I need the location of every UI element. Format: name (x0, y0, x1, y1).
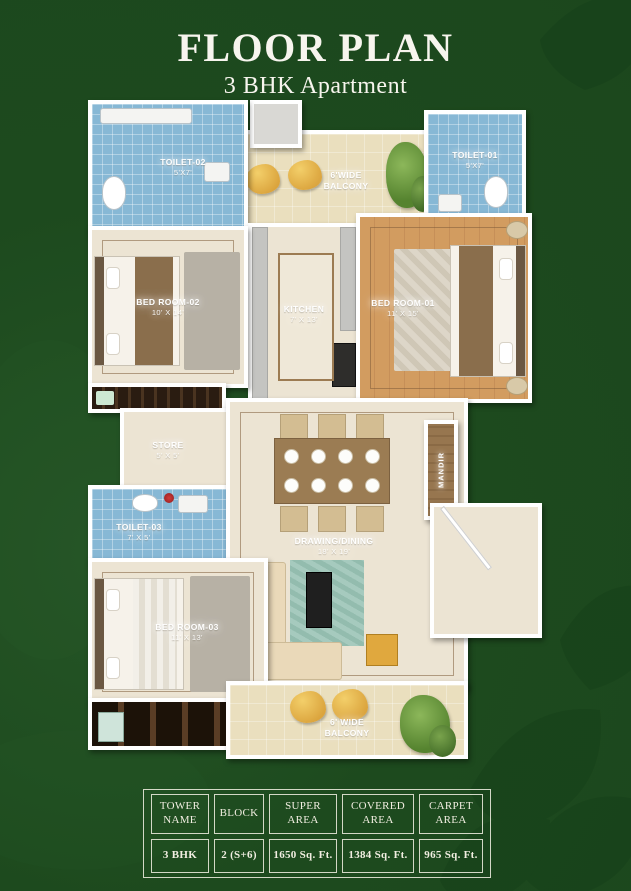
toilet-fixture (132, 494, 158, 512)
spec-value-carpet-area: 965 Sq. Ft. (419, 839, 483, 873)
plant-decor (386, 142, 428, 208)
pillow (106, 267, 120, 289)
floor-plan: 6'WIDE BALCONY TOILET-01 5'X7' TOILET-02… (85, 95, 545, 763)
header: FLOOR PLAN 3 BHK Apartment (0, 24, 631, 100)
sink-fixture (204, 162, 230, 182)
sink-fixture (438, 194, 462, 212)
room-toilet-03: TOILET-03 7' X 5' (88, 485, 248, 565)
spec-header-block: BLOCK (214, 794, 264, 834)
pillow (499, 258, 513, 280)
dining-chair (280, 414, 308, 440)
spec-header-tower-name: TOWER NAME (151, 794, 209, 834)
headboard (95, 579, 104, 689)
bed (94, 578, 184, 690)
kitchen-runner-rug (278, 253, 334, 381)
bed (94, 256, 180, 366)
poster-background: FLOOR PLAN 3 BHK Apartment 6'WIDE BALCON… (0, 0, 631, 891)
room-kitchen: KITCHEN 7' X 13' (248, 223, 360, 405)
spec-value-super-area: 1650 Sq. Ft. (269, 839, 337, 873)
entrance-foyer (430, 503, 542, 638)
dining-chair (280, 506, 308, 532)
dining-chair (318, 506, 346, 532)
tv-unit (306, 572, 332, 628)
room-balcony-bottom: 6' WIDE BALCONY (226, 681, 468, 759)
specification-table: TOWER NAME BLOCK SUPER AREA COVERED AREA… (143, 789, 491, 878)
sink-fixture (178, 495, 208, 513)
service-shaft (250, 100, 302, 148)
pillow (106, 589, 120, 611)
plate (284, 449, 299, 464)
pillow (499, 342, 513, 364)
dining-chair (318, 414, 346, 440)
kitchen-counter (252, 227, 268, 399)
bed (450, 245, 526, 377)
side-table (366, 634, 398, 666)
headboard (516, 246, 525, 376)
plate (311, 478, 326, 493)
plate (311, 449, 326, 464)
toilet-fixture (484, 176, 508, 208)
dining-table (274, 438, 390, 504)
room-toilet-02: TOILET-02 5'X7' (88, 100, 248, 235)
plate (284, 478, 299, 493)
spec-value-block: 2 (S+6) (214, 839, 264, 873)
page-title: FLOOR PLAN (0, 24, 631, 71)
bean-bag (246, 164, 280, 194)
bean-bag (332, 689, 368, 721)
entrance-door-leaf (440, 506, 492, 571)
kitchen-counter (340, 227, 356, 331)
dining-chair (356, 506, 384, 532)
plate (338, 478, 353, 493)
room-bed-room-01: BED ROOM-01 11' X 15' (356, 213, 532, 403)
spec-value-covered-area: 1384 Sq. Ft. (342, 839, 414, 873)
blanket (135, 257, 173, 365)
flower-decor (164, 493, 174, 503)
bathtub-fixture (100, 108, 192, 124)
headboard (95, 257, 104, 365)
bean-bag (290, 691, 326, 723)
plate (365, 449, 380, 464)
room-bed-room-02: BED ROOM-02 10' X 14' (88, 226, 248, 388)
area-rug (184, 252, 240, 370)
pillow (106, 333, 120, 355)
plant-decor (400, 695, 450, 753)
bedside-table (506, 221, 528, 239)
bedside-table (506, 377, 528, 395)
stove (332, 343, 356, 387)
area-rug (190, 576, 250, 692)
spec-header-covered-area: COVERED AREA (342, 794, 414, 834)
mirror (98, 712, 124, 742)
bean-bag (288, 160, 322, 190)
plate (365, 478, 380, 493)
toilet-fixture (102, 176, 126, 210)
blanket (133, 579, 177, 689)
blanket (459, 246, 493, 376)
dining-chair (356, 414, 384, 440)
spec-value-tower-name: 3 BHK (151, 839, 209, 873)
pillow (106, 657, 120, 679)
spec-header-carpet-area: CARPET AREA (419, 794, 483, 834)
towels (96, 391, 114, 405)
spec-header-super-area: SUPER AREA (269, 794, 337, 834)
plate (338, 449, 353, 464)
